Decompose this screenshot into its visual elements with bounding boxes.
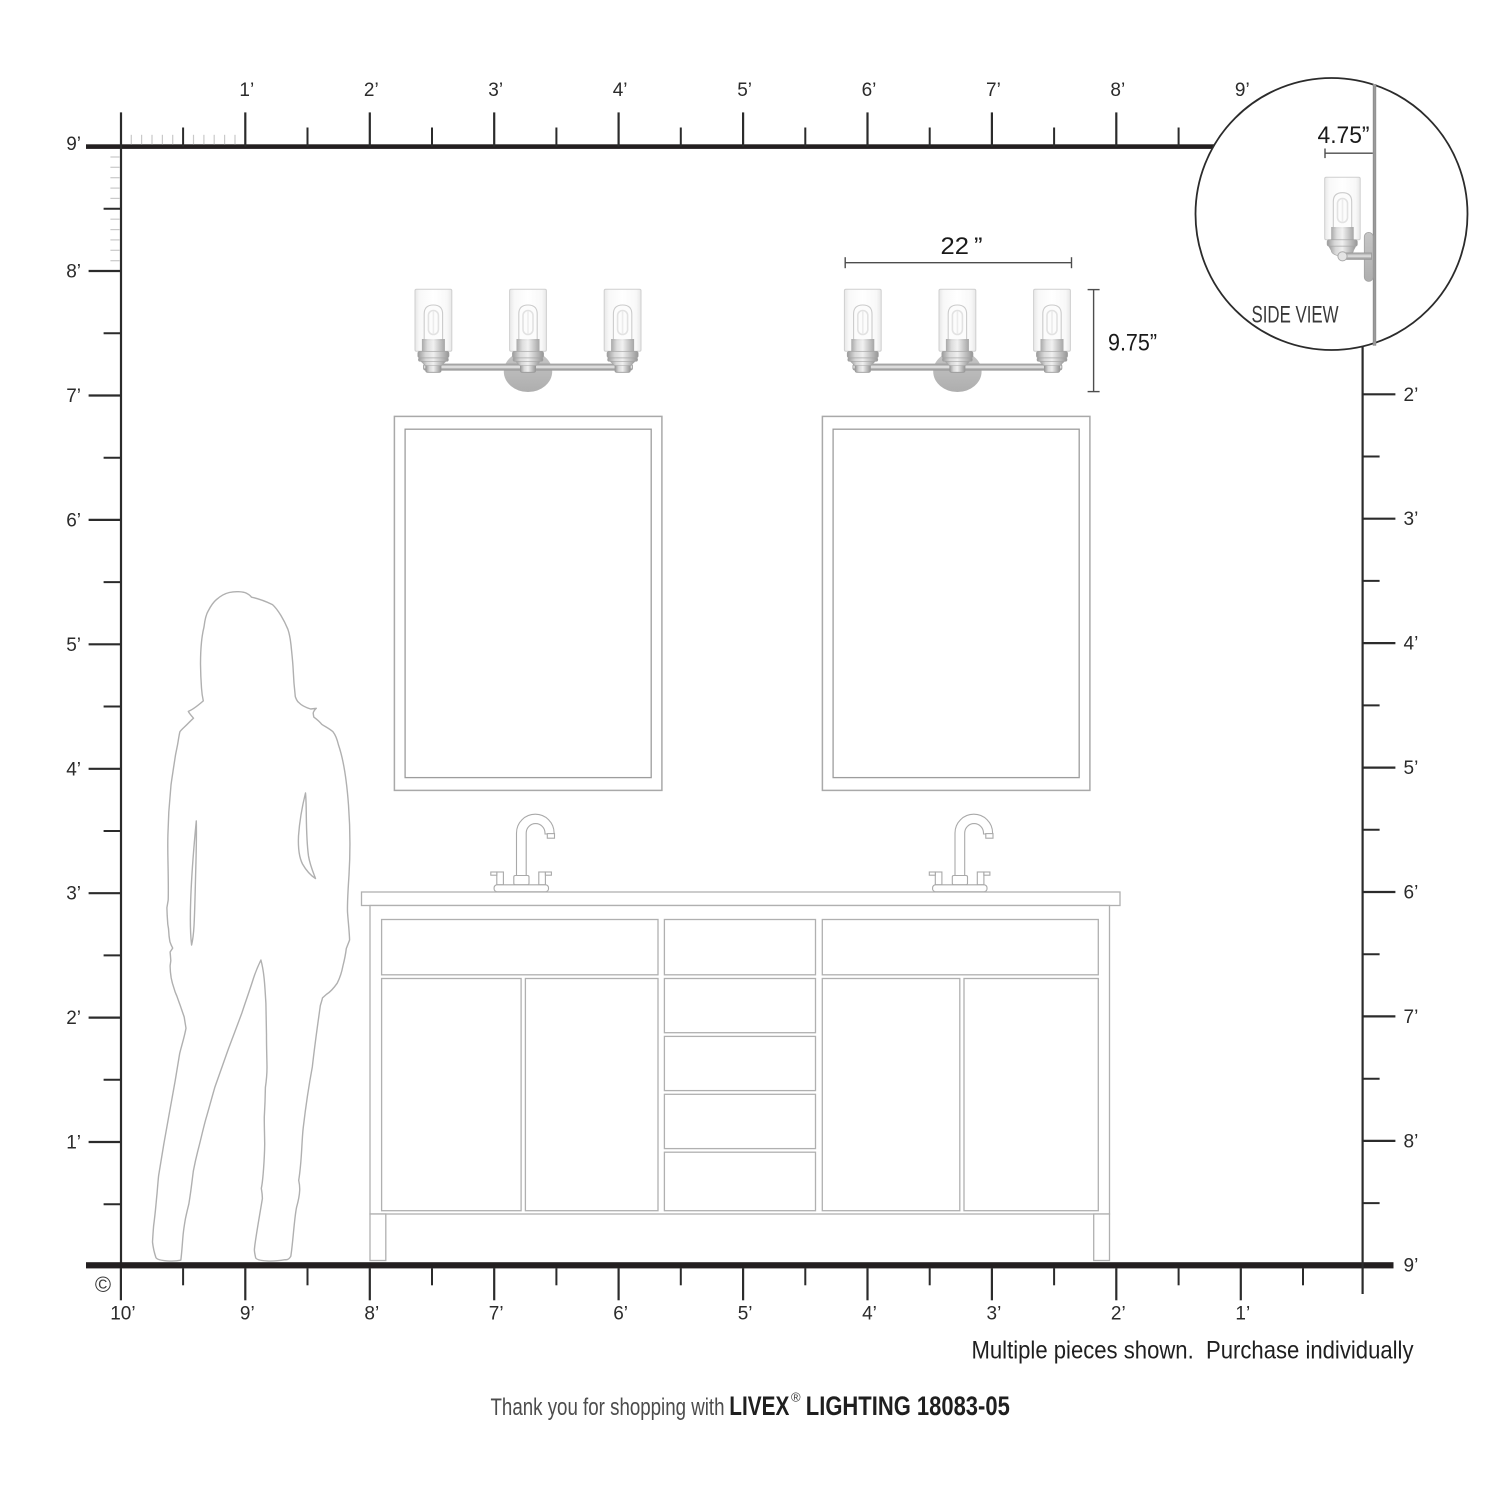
- svg-text:6’: 6’: [66, 510, 81, 531]
- svg-text:4’: 4’: [862, 1304, 877, 1325]
- svg-text:8’: 8’: [364, 1304, 379, 1325]
- svg-text:1’: 1’: [66, 1133, 81, 1154]
- svg-text:9’: 9’: [1235, 80, 1250, 101]
- svg-text:9’: 9’: [240, 1304, 255, 1325]
- svg-text:2’: 2’: [1404, 385, 1419, 406]
- svg-text:22 ”: 22 ”: [941, 233, 983, 260]
- svg-text:©: ©: [95, 1272, 111, 1297]
- svg-text:5’: 5’: [737, 80, 752, 101]
- svg-text:8’: 8’: [1110, 80, 1125, 101]
- svg-text:9’: 9’: [66, 134, 81, 155]
- svg-text:2’: 2’: [1111, 1304, 1126, 1325]
- svg-text:7’: 7’: [986, 80, 1001, 101]
- svg-text:3’: 3’: [66, 884, 81, 905]
- svg-text:6’: 6’: [613, 1304, 628, 1325]
- svg-text:8’: 8’: [1404, 1131, 1419, 1152]
- svg-text:Thank you for shopping with: Thank you for shopping with: [491, 1394, 725, 1421]
- svg-text:7’: 7’: [489, 1304, 504, 1325]
- svg-text:4’: 4’: [1404, 634, 1419, 655]
- svg-text:2’: 2’: [364, 80, 379, 101]
- svg-text:8’: 8’: [66, 262, 81, 283]
- svg-text:6’: 6’: [1404, 883, 1419, 904]
- svg-text:3’: 3’: [488, 80, 503, 101]
- svg-text:3’: 3’: [987, 1304, 1002, 1325]
- svg-text:4.75”: 4.75”: [1318, 122, 1370, 149]
- svg-text:SIDE VIEW: SIDE VIEW: [1252, 301, 1339, 328]
- svg-text:5’: 5’: [1404, 758, 1419, 779]
- svg-text:LIVEX: LIVEX: [729, 1391, 789, 1421]
- svg-text:9’: 9’: [1404, 1256, 1419, 1277]
- svg-text:3’: 3’: [1404, 509, 1419, 530]
- svg-text:9.75”: 9.75”: [1108, 330, 1157, 357]
- svg-text:5’: 5’: [66, 635, 81, 656]
- svg-text:LIGHTING 18083-05: LIGHTING 18083-05: [806, 1391, 1010, 1421]
- svg-text:2’: 2’: [66, 1008, 81, 1029]
- svg-text:4’: 4’: [613, 80, 628, 101]
- svg-text:Multiple pieces shown. Purcha: Multiple pieces shown. Purchase individu…: [972, 1337, 1414, 1365]
- svg-text:1’: 1’: [239, 80, 254, 101]
- svg-text:®: ®: [791, 1390, 801, 1405]
- svg-text:1’: 1’: [1235, 1304, 1250, 1325]
- svg-text:7’: 7’: [66, 386, 81, 407]
- svg-text:5’: 5’: [738, 1304, 753, 1325]
- svg-text:7’: 7’: [1404, 1007, 1419, 1028]
- svg-text:4’: 4’: [66, 759, 81, 780]
- svg-text:6’: 6’: [862, 80, 877, 101]
- svg-text:10’: 10’: [110, 1304, 135, 1325]
